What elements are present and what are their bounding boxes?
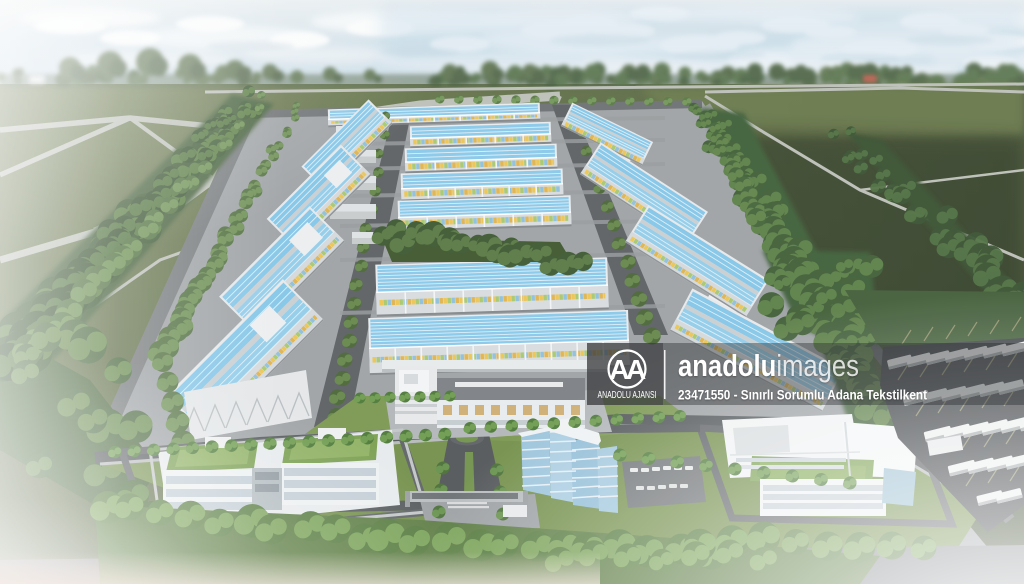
svg-text:anadoluimages: anadoluimages	[678, 348, 859, 383]
svg-text:23471550 - Sınırlı Sorumlu Ada: 23471550 - Sınırlı Sorumlu Adana Tekstil…	[678, 387, 927, 403]
svg-text:ANADOLU AJANSI: ANADOLU AJANSI	[598, 390, 657, 401]
svg-text:AA: AA	[609, 354, 646, 385]
